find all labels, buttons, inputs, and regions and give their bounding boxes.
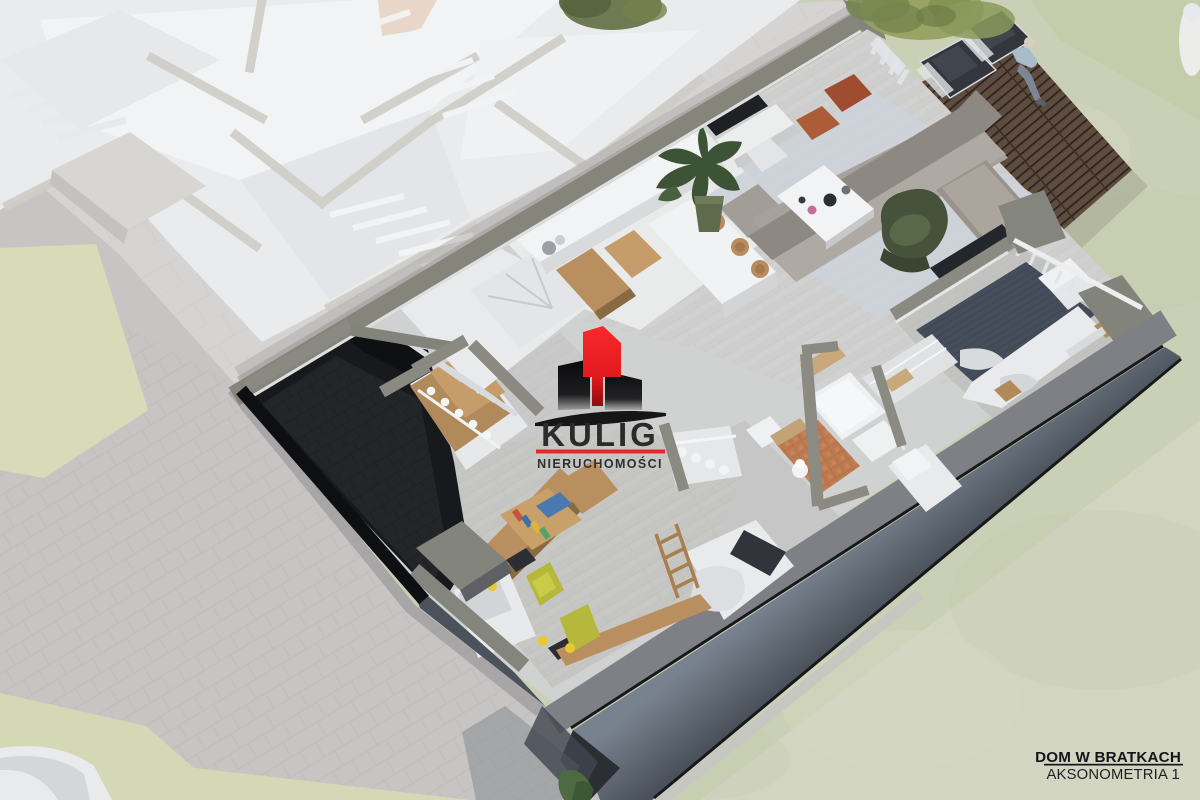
svg-text:KULIG: KULIG [541, 416, 659, 453]
svg-text:NIERUCHOMOŚCI: NIERUCHOMOŚCI [537, 456, 663, 471]
svg-text:DOM W BRATKACH: DOM W BRATKACH [1035, 749, 1181, 766]
svg-text:AKSONOMETRIA 1: AKSONOMETRIA 1 [1046, 767, 1180, 783]
